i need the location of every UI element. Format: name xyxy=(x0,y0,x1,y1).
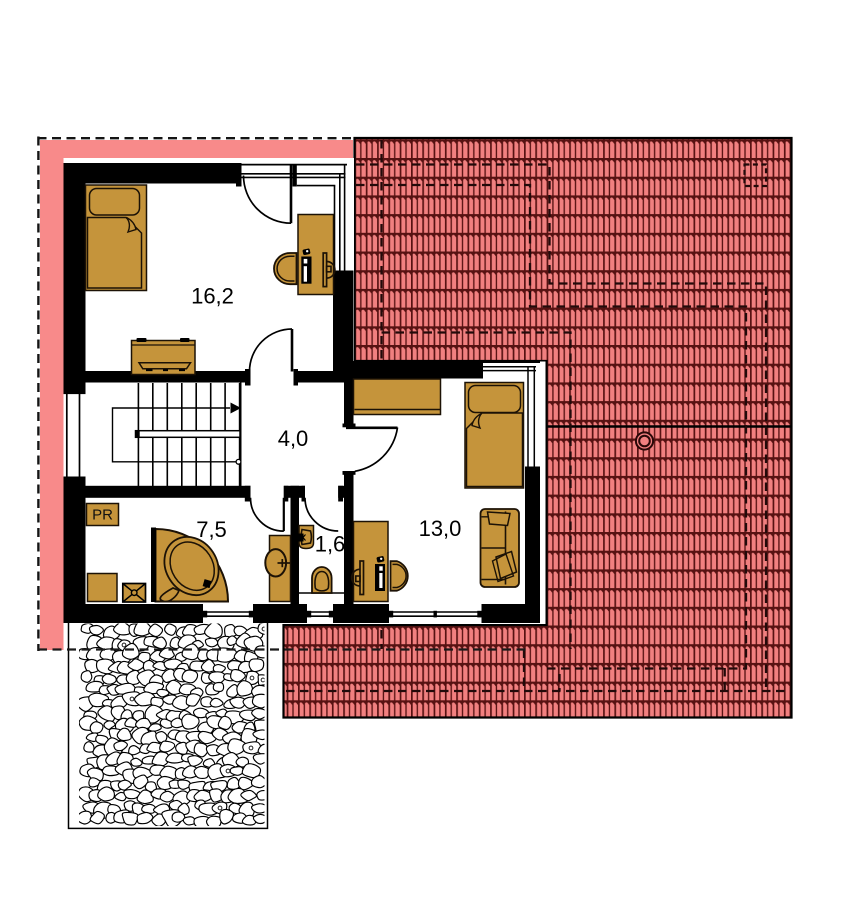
svg-text:PR: PR xyxy=(92,507,113,524)
svg-text:1,6: 1,6 xyxy=(315,532,346,557)
svg-text:16,2: 16,2 xyxy=(191,284,234,309)
svg-text:7,5: 7,5 xyxy=(196,517,227,542)
svg-text:13,0: 13,0 xyxy=(419,516,462,541)
svg-text:4,0: 4,0 xyxy=(278,426,309,451)
